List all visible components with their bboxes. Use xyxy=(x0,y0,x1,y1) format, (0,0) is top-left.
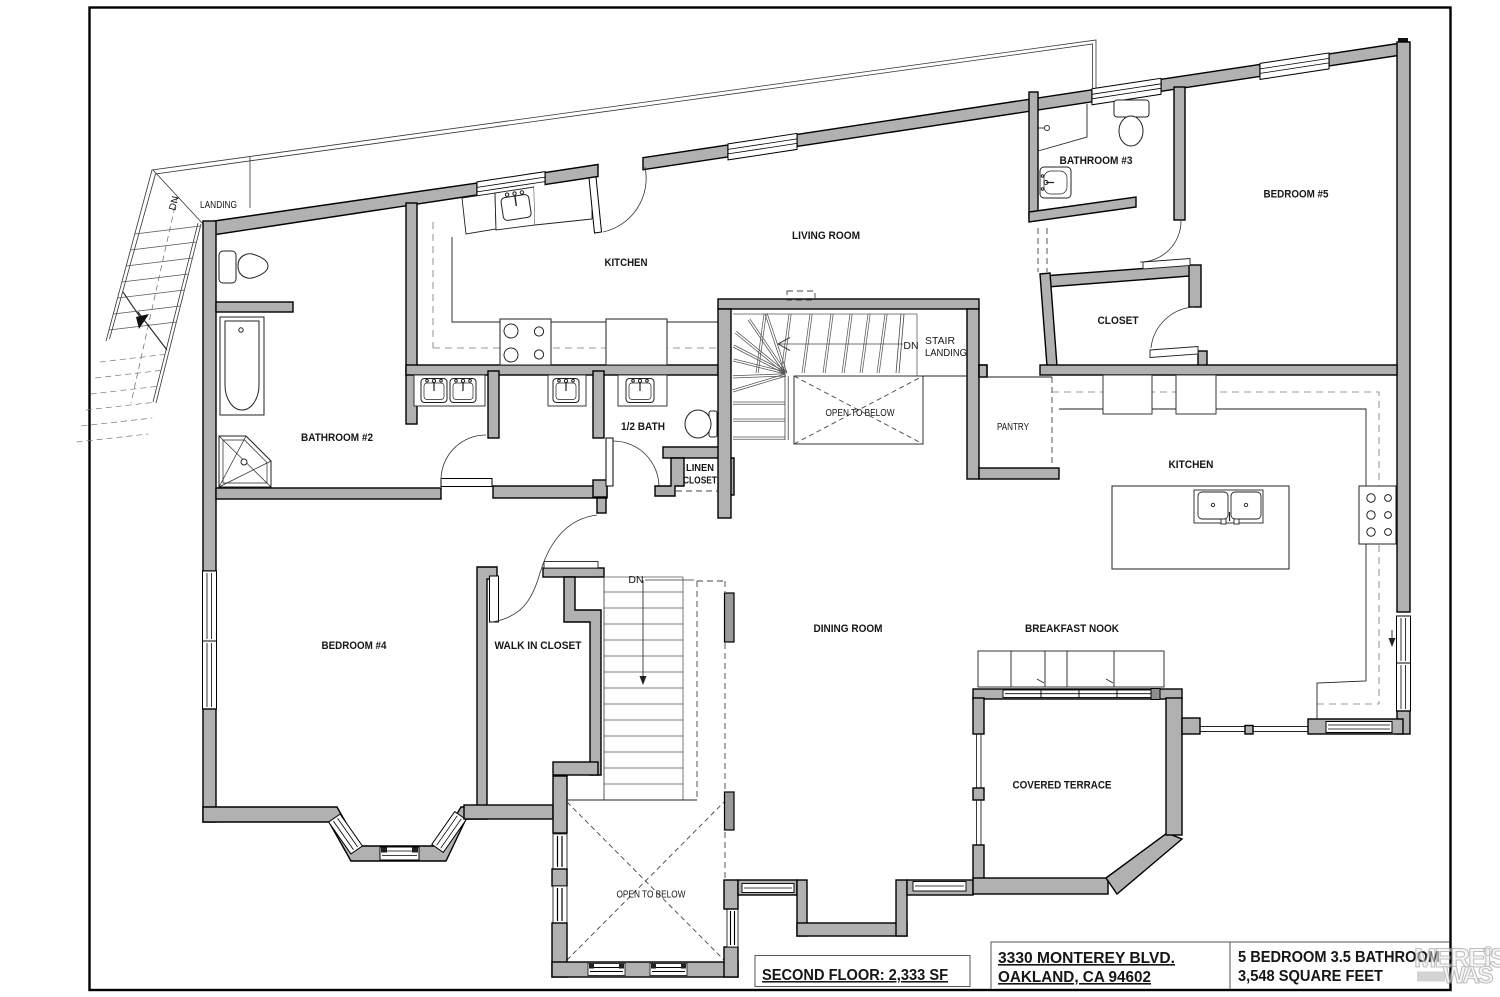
svg-text:KITCHEN: KITCHEN xyxy=(1169,459,1214,471)
svg-text:LANDING: LANDING xyxy=(200,199,237,211)
svg-text:DN: DN xyxy=(628,574,643,586)
svg-text:3330 MONTEREY BLVD.: 3330 MONTEREY BLVD. xyxy=(998,950,1175,967)
svg-text:OPEN TO BELOW: OPEN TO BELOW xyxy=(617,889,686,901)
svg-text:STAIR: STAIR xyxy=(925,335,955,347)
svg-text:LIVING ROOM: LIVING ROOM xyxy=(792,230,860,242)
svg-text:3,548 SQUARE FEET: 3,548 SQUARE FEET xyxy=(1238,968,1383,985)
svg-text:5 BEDROOM 3.5 BATHROOM: 5 BEDROOM 3.5 BATHROOM xyxy=(1238,949,1440,966)
svg-text:BREAKFAST NOOK: BREAKFAST NOOK xyxy=(1025,623,1119,635)
svg-text:CLOSET: CLOSET xyxy=(683,476,717,487)
svg-text:CLOSET: CLOSET xyxy=(1098,315,1139,327)
svg-text:BEDROOM #4: BEDROOM #4 xyxy=(322,640,388,652)
svg-text:1/2 BATH: 1/2 BATH xyxy=(621,421,665,433)
svg-text:COVERED TERRACE: COVERED TERRACE xyxy=(1013,780,1112,792)
svg-text:DINING ROOM: DINING ROOM xyxy=(814,623,883,635)
svg-text:BATHROOM #3: BATHROOM #3 xyxy=(1060,155,1133,167)
svg-text:OAKLAND, CA 94602: OAKLAND, CA 94602 xyxy=(998,969,1151,986)
svg-text:BEDROOM #5: BEDROOM #5 xyxy=(1264,189,1329,201)
svg-text:KITCHEN: KITCHEN xyxy=(605,257,648,269)
svg-text:OPEN TO BELOW: OPEN TO BELOW xyxy=(826,407,895,419)
svg-text:PANTRY: PANTRY xyxy=(997,421,1029,433)
svg-text:LANDING: LANDING xyxy=(925,347,967,359)
svg-text:WAS: WAS xyxy=(1443,962,1494,989)
svg-text:LINEN: LINEN xyxy=(686,463,714,474)
svg-text:SECOND FLOOR: 2,333 SF: SECOND FLOOR: 2,333 SF xyxy=(762,967,948,984)
svg-text:WALK IN CLOSET: WALK IN CLOSET xyxy=(495,640,582,652)
svg-text:DN: DN xyxy=(903,340,918,352)
svg-text:BATHROOM #2: BATHROOM #2 xyxy=(301,432,373,444)
